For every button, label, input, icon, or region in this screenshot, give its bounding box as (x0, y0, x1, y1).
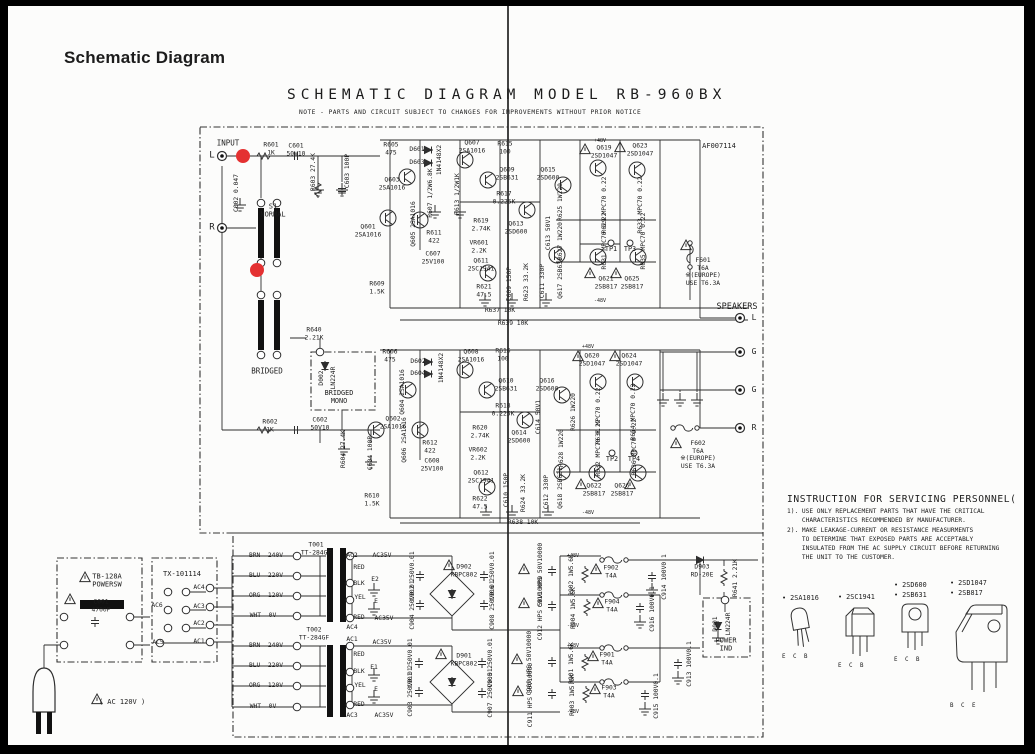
instruction-line: 2). MAKE LEAKAGE-CURRENT OR RESISTANCE M… (787, 526, 1033, 535)
component-label: Q615 2SD600 (537, 166, 560, 181)
component-label: Q620 2SD1047 (579, 352, 606, 367)
component-label: Q616 2SD600 (536, 377, 559, 392)
legend-part-label: • 2SB631 (894, 590, 938, 600)
component-label: L (752, 313, 757, 323)
component-label: T002 TT-284GF (299, 626, 329, 641)
component-label: +48V (594, 138, 606, 144)
legend-pin-labels: B C E (950, 703, 1020, 709)
legend-part-label: • 2SD600 (894, 580, 938, 590)
component-label: LN224R (330, 367, 338, 390)
legend-item-2sa1016: • 2SA1016 E C B (782, 593, 822, 660)
component-label: R620 2.74K (471, 424, 490, 439)
component-label: G (752, 347, 757, 357)
legend-item-2sd1047-2sb817: • 2SD1047 • 2SB817 B C E (950, 578, 1020, 709)
component-label: R (752, 423, 757, 433)
component-label: Q610 2SB631 (495, 377, 518, 392)
component-label: S1 NORMAL (260, 203, 285, 220)
component-label: R618 0.225K (492, 402, 515, 417)
component-label: R636 MPC70 0.22 (631, 419, 639, 476)
component-label: AC3 (346, 712, 357, 720)
legend-pin-labels: E C B (894, 657, 938, 663)
component-label: -48V (567, 709, 579, 715)
component-label: AC35V (375, 712, 394, 720)
component-label: C913 100V0.1 (686, 641, 694, 687)
component-label: R613 1/2W1K (454, 173, 462, 215)
component-label: R611 422 (426, 229, 441, 244)
component-label: R640 2.21K (305, 326, 324, 341)
component-label: YEL (354, 594, 365, 602)
component-label: T001 TT-284GF (301, 541, 331, 556)
component-label: Q611 2SC1941 (468, 257, 495, 272)
component-label: R638 10K (508, 519, 538, 527)
component-label: ORG 120V (249, 682, 283, 690)
component-label: R624 33.2K (520, 474, 528, 512)
component-label: R619 2.74K (472, 217, 491, 232)
component-label: AC2 (193, 620, 204, 628)
page-frame-top (0, 0, 1035, 6)
component-label: R623 33.2K (523, 263, 531, 301)
component-label: BLU 220V (249, 572, 283, 580)
to126-package-icon (838, 602, 882, 658)
component-label: AC5 (152, 639, 163, 647)
component-label: C916 100V0.1 (649, 586, 657, 632)
instruction-line: INSULATED FROM THE AC SUPPLY CIRCUIT BEF… (787, 544, 1033, 553)
component-label: -48V (594, 298, 606, 304)
instructions-title: INSTRUCTION FOR SERVICING PERSONNEL( (787, 494, 1033, 505)
component-label: TX-101114 (163, 570, 201, 578)
component-label: AC2 (346, 552, 357, 560)
component-label: R628 1W220 (558, 429, 566, 467)
component-label: VR602 2.2K (469, 446, 488, 461)
component-label: F902 T4A (603, 564, 618, 579)
instruction-line: TO DETERMINE THAT EXPOSED PARTS ARE ACCE… (787, 535, 1033, 544)
component-label: WHT 0V (250, 703, 277, 711)
component-label: BRN 240V (249, 642, 283, 650)
marker-dot-1 (236, 149, 250, 163)
component-label: TP1 (605, 245, 617, 253)
instruction-line: 1). USE ONLY REPLACEMENT PARTS THAT HAVE… (787, 507, 1033, 516)
component-label: R604 27.4K (340, 430, 348, 468)
legend-part-label: • 2SB817 (950, 588, 1020, 598)
component-label: D602 (410, 358, 425, 366)
component-label: AC35V (373, 552, 392, 560)
legend-pin-labels: E C B (782, 654, 822, 660)
component-label: C604 100P (367, 436, 375, 470)
transistor-package-legend: • 2SA1016 E C B • 2SC1941 E C B • 2SD600… (778, 575, 1028, 725)
component-label: SPEAKERS (717, 302, 758, 312)
component-label: D901 KBPC802 (451, 652, 478, 667)
page-frame-right (1024, 0, 1035, 754)
component-label: C903 250V0.01 (407, 667, 415, 716)
component-label: Q601 2SA1016 (355, 223, 382, 238)
component-label: POWER IND (715, 637, 736, 654)
component-label: AC3 (193, 603, 204, 611)
component-label: TB-128A POWERSW (92, 573, 122, 590)
component-label: R617 0.225K (493, 190, 516, 205)
component-label: WHT 0V (250, 612, 277, 620)
component-label: D601 (409, 146, 424, 154)
scanned-schematic-page: Schematic Diagram SCHEMATIC DIAGRAM MODE… (0, 0, 1035, 754)
component-label: ORG 120V (249, 592, 283, 600)
component-label: D603 (409, 159, 424, 167)
component-label: E (374, 598, 378, 606)
component-label: Q622 2SB817 (583, 482, 606, 497)
component-label: C904 250V0.01 (409, 580, 417, 629)
component-label: AC4 (346, 624, 357, 632)
component-label: Q621 2SB817 (595, 275, 618, 290)
instruction-line: THE UNIT TO THE CUSTOMER. (787, 553, 1033, 562)
component-label: R603 27.4K (310, 153, 318, 191)
component-label: R626 1W220 (570, 393, 578, 431)
component-label: D902 KBPC802 (451, 563, 478, 578)
page-fold-line (507, 0, 509, 754)
component-label: E (374, 686, 378, 694)
component-label: C002 0.047 (233, 174, 241, 212)
legend-part-label: • 2SA1016 (782, 593, 822, 603)
component-label: C612 330P (543, 475, 551, 509)
component-label: C603 100P (344, 154, 352, 188)
component-label: C001 4700P (92, 598, 111, 613)
component-label: AC1 (193, 638, 204, 646)
component-label: AC1 (346, 636, 357, 644)
component-label: D002 (318, 370, 326, 385)
component-label: BRIDGED MONO (325, 389, 354, 405)
component-label: AC4 (193, 584, 204, 592)
component-label: +48V (582, 344, 594, 350)
component-label: Q605 2SA1016 (410, 201, 418, 247)
component-label: RED (353, 701, 364, 709)
component-label: YEL (354, 682, 365, 690)
component-label: F903 T4A (601, 684, 616, 699)
legend-part-label: • 2SC1941 (838, 592, 882, 602)
component-label: RED (353, 564, 364, 572)
component-label: F901 T4A (599, 651, 614, 666)
component-label: R606 475 (382, 348, 397, 363)
component-label: C911 HPS 50V10000 (527, 663, 535, 727)
legend-part-label: • 2SD1047 (950, 578, 1020, 588)
marker-dot-2 (250, 263, 264, 277)
component-label: F602 T6A ※(EUROPE) USE T6.3A (680, 440, 716, 470)
component-label: R641 2.21K (732, 559, 740, 597)
legend-pin-labels: E C B (838, 663, 882, 669)
component-label: C915 100V0.1 (653, 673, 661, 719)
component-label: Q604 2SA1016 (399, 369, 407, 415)
component-label: D604 (410, 370, 425, 378)
component-label: TP3 (624, 245, 636, 253)
component-label: C908 250V0.01 (489, 580, 497, 629)
component-label: C608 25V100 (421, 457, 444, 472)
component-label: ( AC 120V ) (99, 698, 145, 706)
component-label: R615 100 (497, 140, 512, 155)
component-label: E1 (370, 664, 378, 672)
component-label: C601 50V10 (287, 142, 306, 157)
component-label: AC35V (373, 639, 392, 647)
component-label: R607 1/2W6.8K (427, 168, 435, 217)
component-label: D001 (712, 616, 720, 631)
component-label: Q612 2SC1941 (468, 469, 495, 484)
component-label: R601 1K (263, 141, 278, 156)
component-label: F601 T6A ※(EUROPE) USE T6.3A (685, 257, 721, 287)
component-label: Q618 2SB631 (557, 467, 565, 509)
component-label: -48V (567, 623, 579, 629)
component-label: BRN 240V (249, 552, 283, 560)
component-label: R625 1W220 (557, 183, 565, 221)
component-label: Q607 2SA1016 (459, 139, 486, 154)
component-label: Q614 2SD600 (508, 429, 531, 444)
component-label: VR601 2.2K (470, 239, 489, 254)
component-label: R635 MPC70 0.22 (640, 213, 648, 270)
component-label: R631 MPC70 0.22 (601, 213, 609, 270)
component-label: Q603 2SA1016 (379, 176, 406, 191)
legend-item-2sc1941: • 2SC1941 E C B (838, 592, 882, 669)
component-label: BLK (353, 580, 364, 588)
component-label: AF007114 (702, 142, 736, 150)
component-label: C611 330P (539, 264, 547, 298)
component-label: BRIDGED (251, 367, 283, 376)
component-label: LN224R (725, 613, 733, 636)
component-label: BLK (353, 668, 364, 676)
component-label: C602 50V10 (311, 416, 330, 431)
servicing-instructions: INSTRUCTION FOR SERVICING PERSONNEL( 1).… (787, 494, 1033, 563)
component-label: R622 47.5 (472, 495, 487, 510)
component-label: L (209, 151, 214, 162)
component-label: Q608 2SA1016 (458, 348, 485, 363)
component-label: 1N4148X2 (436, 145, 444, 175)
component-label: R639 10K (498, 320, 528, 328)
component-label: E2 (371, 576, 379, 584)
component-label: Q626 2SB817 (611, 482, 634, 497)
to202-package-icon (894, 600, 938, 652)
component-label: Q624 2SD1047 (616, 352, 643, 367)
component-label: D903 RD-20E (691, 563, 714, 578)
component-label: Q606 2SA1016 (401, 417, 409, 463)
to3p-package-icon (950, 598, 1020, 698)
component-label: +48V (567, 643, 579, 649)
component-label: R602 1K (262, 418, 277, 433)
component-label: R612 422 (422, 439, 437, 454)
component-label: 1N4148X2 (438, 353, 446, 383)
component-label: Q617 2SB631 (557, 257, 565, 299)
component-label: R632 MPC70 0.22 (595, 420, 603, 477)
component-label: INPUT (217, 139, 240, 148)
component-label: C907 250V0.01 (487, 668, 495, 717)
component-label: Q625 2SB817 (621, 275, 644, 290)
instruction-line: CHARACTERISTICS RECOMMENDED BY MANUFACTU… (787, 516, 1033, 525)
component-label: AC6 (151, 602, 162, 610)
page-frame-bottom (0, 745, 1035, 754)
component-label: R621 47.5 (476, 283, 491, 298)
legend-item-2sd600-2sb631: • 2SD600 • 2SB631 E C B (894, 580, 938, 663)
component-label: RED (353, 651, 364, 659)
component-label: R627 1W220 (557, 222, 565, 260)
component-label: Q619 2SD1047 (591, 144, 618, 159)
component-label: +48V (567, 553, 579, 559)
component-label: Q623 2SD1047 (627, 142, 654, 157)
component-label: C607 25V100 (422, 250, 445, 265)
page-frame-left (0, 0, 8, 754)
component-label: F904 T4A (604, 598, 619, 613)
component-label: R605 475 (383, 141, 398, 156)
component-label: C914 100V0.1 (661, 554, 669, 600)
component-label: BLU 220V (249, 662, 283, 670)
component-label: R637 10K (485, 307, 515, 315)
component-label: C614 50V1 (535, 400, 543, 434)
component-label: AC35V (375, 615, 394, 623)
component-label: -48V (582, 510, 594, 516)
component-label: R (209, 223, 214, 234)
component-label: TP4 (628, 455, 640, 463)
component-label: G (752, 385, 757, 395)
component-label: C912 HPS 50V10000 (537, 576, 545, 640)
component-label: RED (353, 614, 364, 622)
component-label: R610 1.5K (364, 492, 379, 507)
to92-package-icon (782, 603, 822, 649)
component-label: R609 1.5K (369, 280, 384, 295)
component-label: TP2 (606, 455, 618, 463)
component-label: C613 50V1 (545, 216, 553, 250)
